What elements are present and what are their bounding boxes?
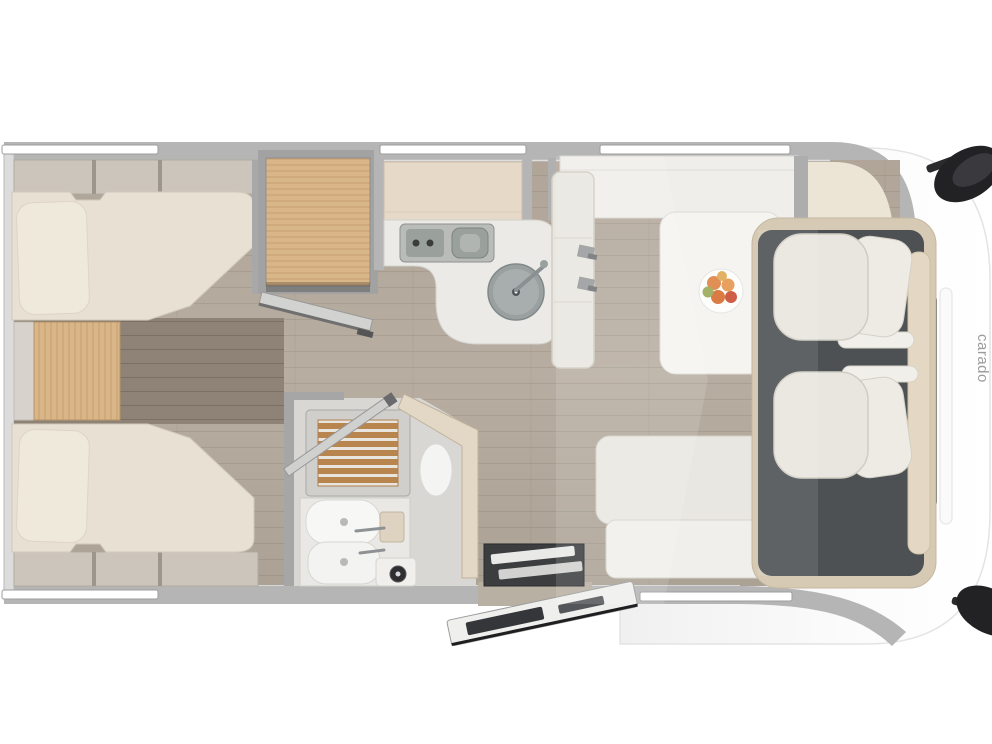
- brand-logo: carado: [974, 334, 991, 383]
- window-top-dinette: [600, 145, 790, 154]
- motorhome-floorplan: carado: [0, 0, 992, 744]
- toilet: [420, 444, 452, 496]
- fruit-plate: [699, 269, 743, 313]
- bathroom: [283, 392, 478, 586]
- a-pillar: [940, 288, 952, 524]
- bathroom-top-wall: [284, 392, 344, 400]
- window-top-kitchen: [380, 145, 526, 154]
- washbasin-unit: [300, 498, 416, 586]
- floorplan-canvas: carado: [0, 0, 992, 744]
- pillow-bottom: [16, 429, 90, 543]
- window-bottom-rear: [2, 590, 158, 599]
- bathroom-left-wall: [284, 396, 294, 586]
- bedside-step: [14, 322, 34, 420]
- shower-slats: [318, 420, 398, 486]
- cooktop: [400, 224, 494, 262]
- overhead-shelf-top: [14, 160, 258, 194]
- dashboard: [908, 252, 930, 554]
- wardrobe-wood-floor: [266, 158, 370, 286]
- fridge-unit: [384, 162, 522, 220]
- cooktop-knob: [427, 240, 434, 247]
- wooden-step: [34, 322, 120, 420]
- overhead-shelf-bottom: [14, 552, 258, 586]
- cooktop-knob: [413, 240, 420, 247]
- pillow-top: [16, 201, 90, 315]
- window-top-rear: [2, 145, 158, 154]
